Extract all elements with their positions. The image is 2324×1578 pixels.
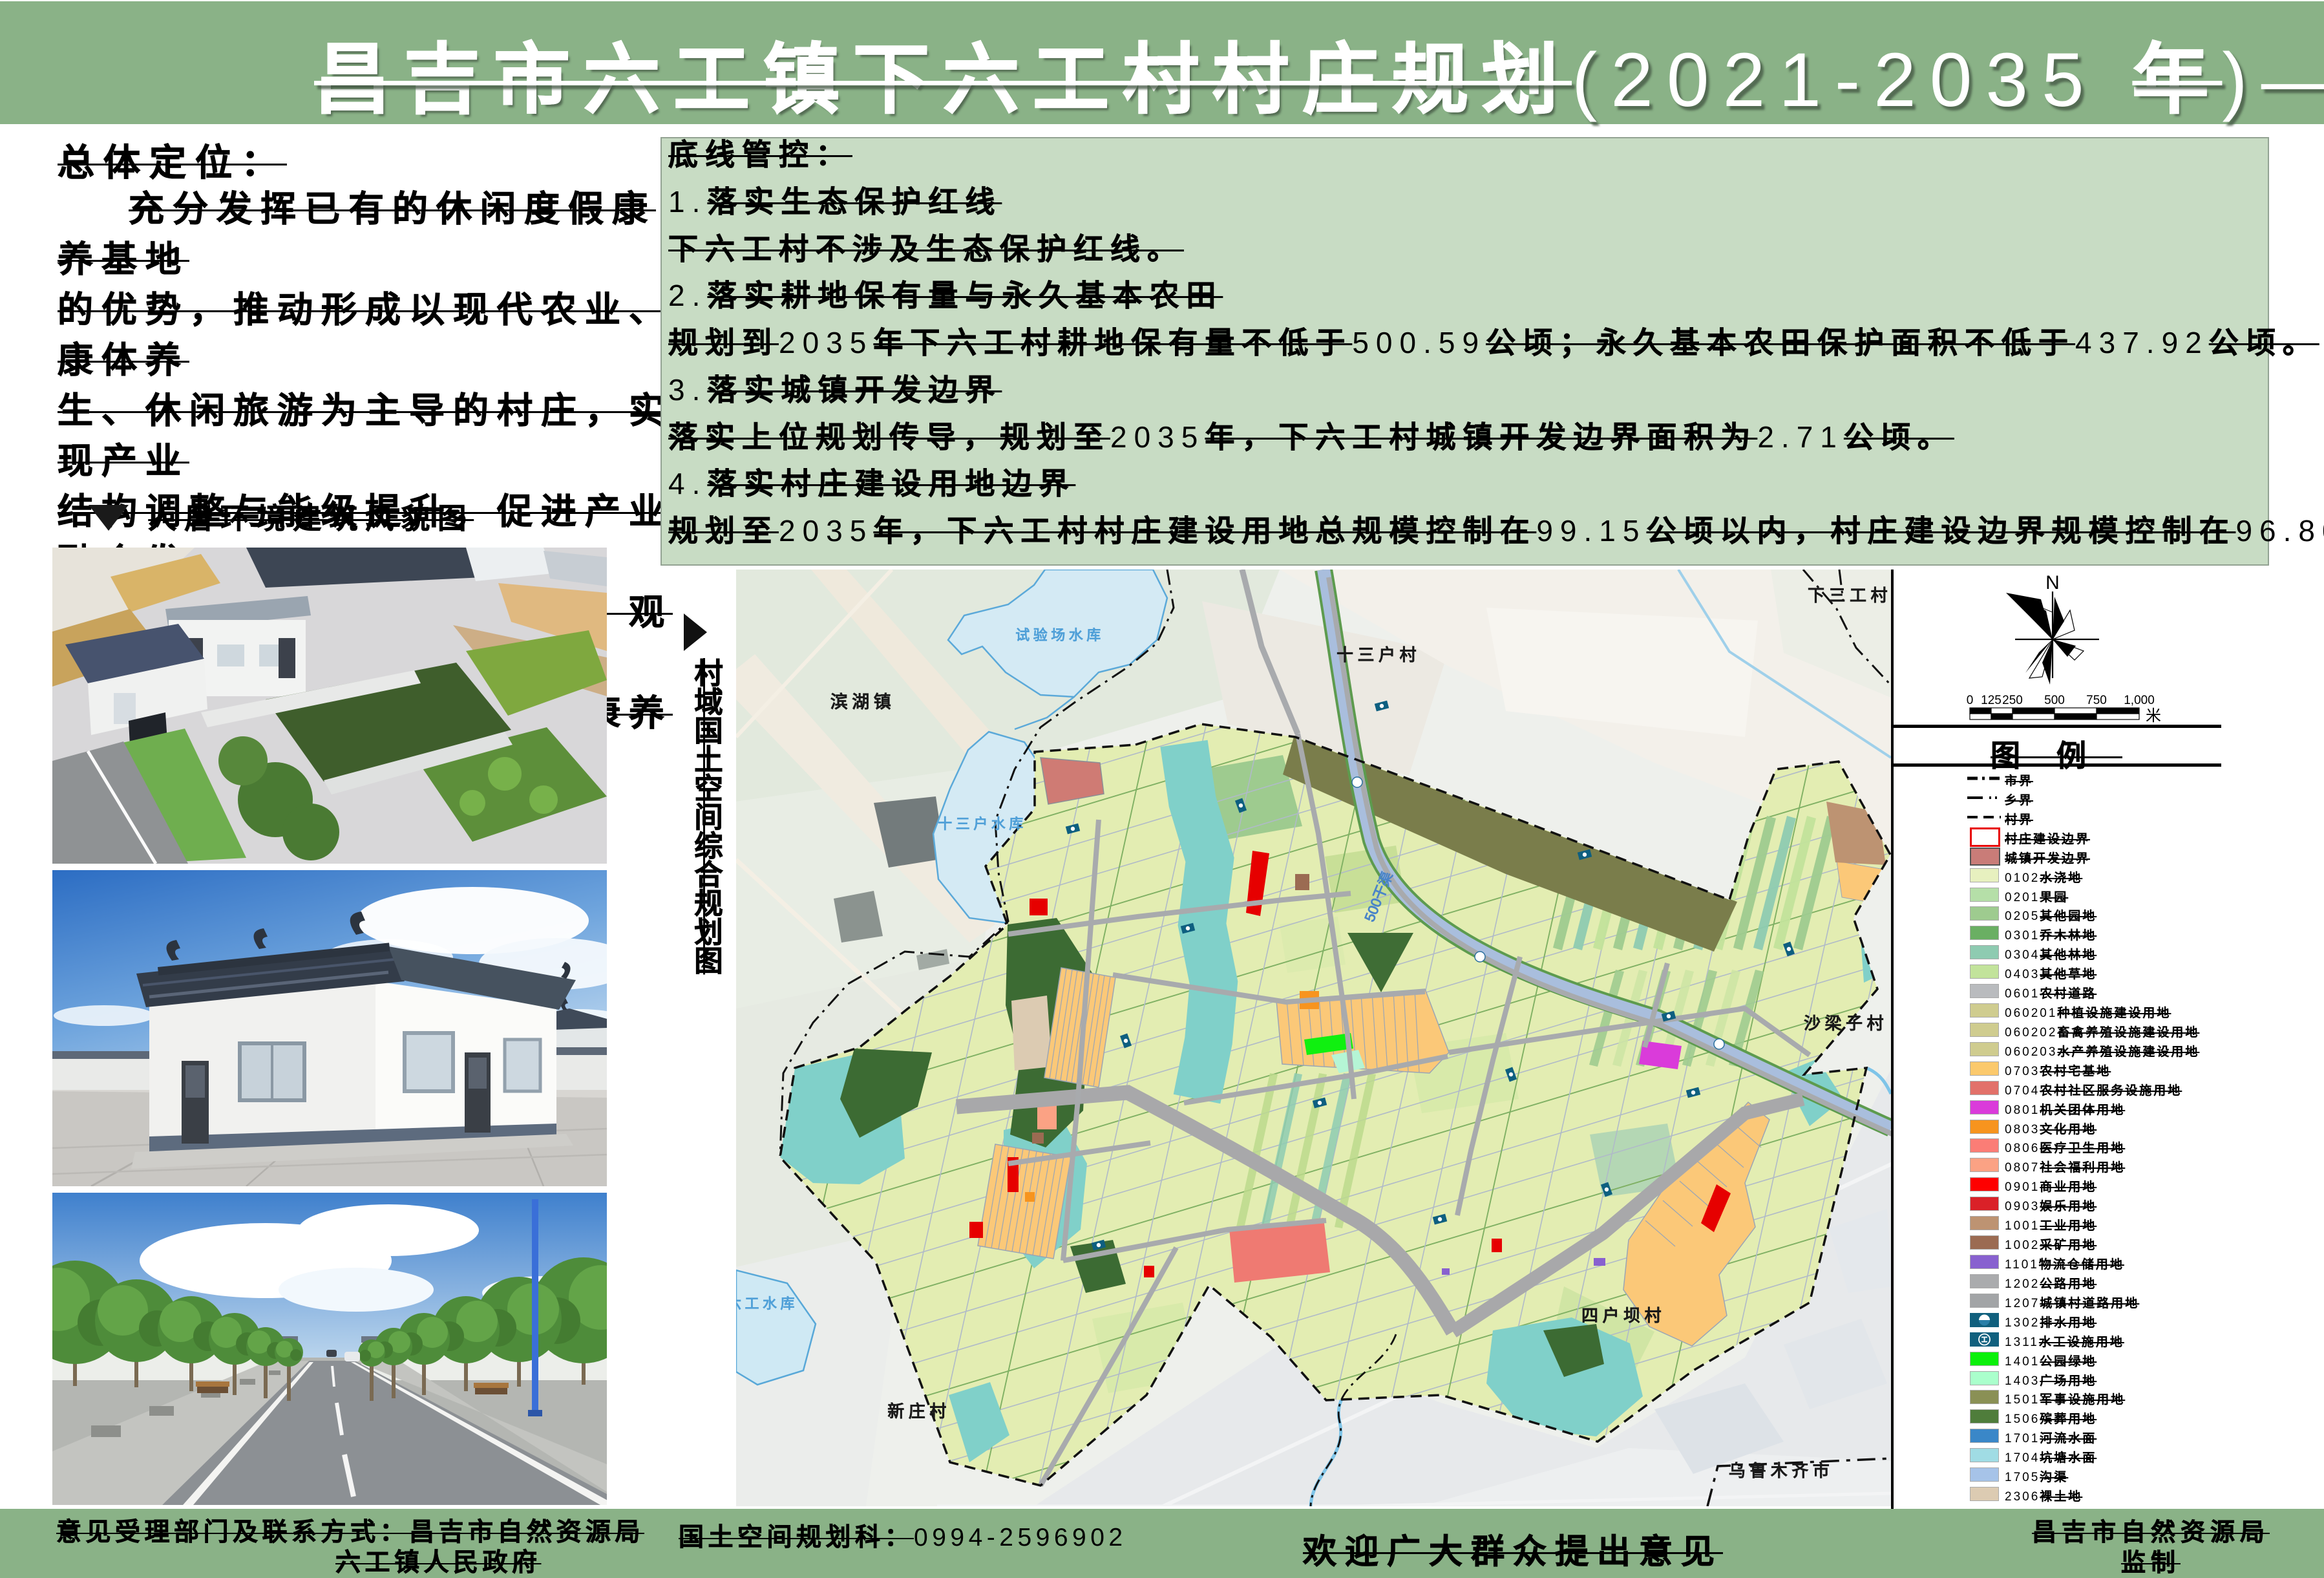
svg-text:250: 250	[2002, 694, 2023, 707]
svg-text:750: 750	[2086, 694, 2107, 707]
svg-text:十三户水库: 十三户水库	[938, 816, 1027, 832]
svg-text:新庄村: 新庄村	[887, 1402, 951, 1421]
svg-text:十三户村: 十三户村	[1336, 645, 1421, 665]
svg-text:500: 500	[2044, 694, 2065, 707]
svg-text:N: N	[2045, 575, 2060, 593]
svg-text:六工水库: 六工水库	[736, 1295, 798, 1312]
svg-text:125: 125	[1981, 694, 2002, 707]
svg-text:0: 0	[1967, 694, 1974, 707]
svg-text:四户坝村: 四户坝村	[1581, 1306, 1665, 1325]
svg-text:滨湖镇: 滨湖镇	[830, 692, 896, 712]
svg-text:下三工村: 下三工村	[1808, 586, 1892, 605]
svg-text:沙梁子村: 沙梁子村	[1804, 1014, 1888, 1033]
svg-text:米: 米	[2146, 707, 2161, 725]
svg-text:乌鲁木齐市: 乌鲁木齐市	[1729, 1461, 1834, 1480]
svg-text:试验场水库: 试验场水库	[1015, 627, 1104, 643]
svg-text:1,000: 1,000	[2124, 694, 2155, 707]
